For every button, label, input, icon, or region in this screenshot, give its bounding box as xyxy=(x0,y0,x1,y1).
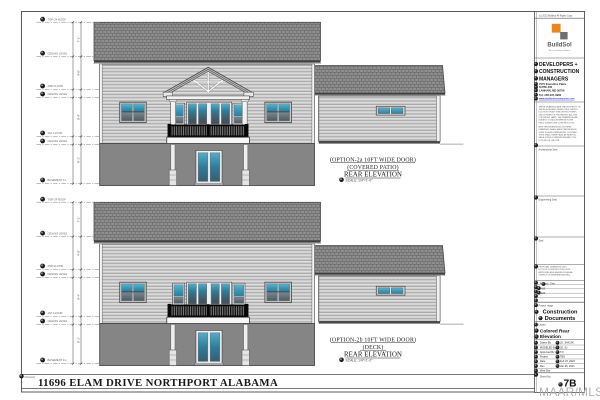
svg-text:7'-1″: 7'-1″ xyxy=(76,37,80,43)
svg-text:DEVELOPERS +: DEVELOPERS + xyxy=(539,62,578,68)
svg-text:MAAR/MLS: MAAR/MLS xyxy=(539,385,600,399)
svg-text:A06: A06 xyxy=(541,288,546,291)
svg-text:1ST FLOOR: 1ST FLOOR xyxy=(48,131,63,135)
svg-text:THE BUILDER AND DEVELOPER. REP: THE BUILDER AND DEVELOPER. REPRO- xyxy=(539,108,579,111)
svg-text:Project: Project xyxy=(540,356,548,359)
svg-text:JD, SHIOJN: JD, SHIOJN xyxy=(560,342,574,345)
svg-text:SCALE: 1/4″=1'-0″: SCALE: 1/4″=1'-0″ xyxy=(346,358,374,362)
svg-text:TJI: TJI xyxy=(560,351,564,354)
svg-text:Documents: Documents xyxy=(545,316,575,322)
svg-text:2ND FLOOR: 2ND FLOOR xyxy=(48,264,63,268)
svg-text:“We're building solutions”: “We're building solutions” xyxy=(548,49,572,52)
svg-text:PROPOSAL DRAWINGS ONLY:: PROPOSAL DRAWINGS ONLY: xyxy=(539,266,568,269)
svg-text:Jan 25, 2023: Jan 25, 2023 xyxy=(560,365,575,368)
svg-text:CONSTRUCTION: CONSTRUCTION xyxy=(539,69,580,75)
svg-text:TOP OF ROOF: TOP OF ROOF xyxy=(48,17,67,21)
svg-text:8'-1″: 8'-1″ xyxy=(76,157,80,163)
svg-text:TORS SHALL VERIFY AND BE RESPO: TORS SHALL VERIFY AND BE RESPON- xyxy=(539,134,577,137)
svg-text:9'-4″: 9'-4″ xyxy=(76,294,80,300)
svg-text:SIBLE FOR ALL DIMENSIONS AND C: SIBLE FOR ALL DIMENSIONS AND CON- xyxy=(539,136,577,139)
svg-text:2ND FLOOR: 2ND FLOOR xyxy=(48,84,63,88)
svg-text:(c) 2023 Buildsol All Rights C: (c) 2023 Buildsol All Rights Copy xyxy=(539,14,573,17)
svg-text:Layout: Layout xyxy=(539,324,547,327)
svg-text:Construction: Construction xyxy=(543,310,578,316)
svg-text:Tel: 202-237-0960: Tel: 202-237-0960 xyxy=(539,93,562,97)
svg-text:BASEMENT F.L.: BASEMENT F.L. xyxy=(48,178,68,182)
svg-text:Project stage: Project stage xyxy=(539,304,554,307)
svg-text:CHITECT OR ENGINEER AS REQ.: CHITECT OR ENGINEER AS REQ. xyxy=(539,273,571,276)
svg-text:Architectural Seal: Architectural Seal xyxy=(539,149,558,152)
svg-text:THESE DRAWINGS ARE THE PROPERT: THESE DRAWINGS ARE THE PROPERTY OF xyxy=(539,105,582,108)
svg-text:A06: A06 xyxy=(541,292,546,295)
svg-text:DRAWINGS SHALL HAVE PRECEDENCE: DRAWINGS SHALL HAVE PRECEDENCE xyxy=(539,128,578,131)
svg-text:Date: Date xyxy=(540,360,546,363)
svg-text:MODELED By: MODELED By xyxy=(540,346,557,349)
svg-text:LANHAM, MD 20706: LANHAM, MD 20706 xyxy=(539,88,565,92)
svg-text:Approved By: Approved By xyxy=(540,351,555,354)
svg-text:(OPTION-2b 10FT WIDE DOOR): (OPTION-2b 10FT WIDE DOOR) xyxy=(330,336,416,343)
svg-text:TEN CONSENT IS PROHIBITED. ALL: TEN CONSENT IS PROHIBITED. ALL THE xyxy=(539,113,578,116)
svg-text:SUBJECT TO ADJUSTMENTS IN THE: SUBJECT TO ADJUSTMENTS IN THE xyxy=(539,119,574,122)
svg-text:Drawn By: Drawn By xyxy=(540,342,552,345)
svg-text:www.buildsolconstruction.com: www.buildsolconstruction.com xyxy=(539,98,574,101)
svg-text:CEILING LEVEL: CEILING LEVEL xyxy=(48,319,68,323)
svg-text:CEILING LEVEL: CEILING LEVEL xyxy=(48,272,68,276)
svg-text:JD, SJ: JD, SJ xyxy=(560,346,568,349)
svg-text:(DECK): (DECK) xyxy=(363,344,384,351)
svg-text:Seal: Seal xyxy=(539,240,544,243)
svg-text:Colored Rear: Colored Rear xyxy=(540,328,570,333)
svg-text:Owner(s): Owner(s) xyxy=(25,375,36,379)
svg-text:APPROVED AND SEALED BY AN AR-: APPROVED AND SEALED BY AN AR- xyxy=(539,271,574,274)
svg-text:1ST FLOOR: 1ST FLOOR xyxy=(48,311,63,315)
svg-text:TOP OF ROOF: TOP OF ROOF xyxy=(48,197,67,201)
svg-text:CEILING LEVEL: CEILING LEVEL xyxy=(48,51,68,55)
svg-text:8'-1″: 8'-1″ xyxy=(76,337,80,343)
svg-text:MANAGERS: MANAGERS xyxy=(539,76,569,82)
svg-text:7'-1″: 7'-1″ xyxy=(76,217,80,223)
svg-text:DITIONS ON THE JOB.: DITIONS ON THE JOB. xyxy=(539,140,561,142)
svg-text:11696 ELAM DRIVE NORTHPORT ALA: 11696 ELAM DRIVE NORTHPORT ALABAMA xyxy=(38,377,278,389)
svg-text:CEILING LEVEL: CEILING LEVEL xyxy=(48,231,68,235)
svg-text:FIELD DURING THE CONSTRUCTION.: FIELD DURING THE CONSTRUCTION. xyxy=(539,122,575,124)
svg-text:TBD: TBD xyxy=(560,356,565,359)
svg-text:CEILING LEVEL: CEILING LEVEL xyxy=(48,139,68,143)
svg-text:OVER SCALED DIMENSIONS. CONTRA: OVER SCALED DIMENSIONS. CONTRAC- xyxy=(539,131,578,134)
svg-text:COPYRIGHT LAWS. THE DRAWINGS A: COPYRIGHT LAWS. THE DRAWINGS ARE xyxy=(539,116,579,119)
svg-text:BASEMENT F.L.: BASEMENT F.L. xyxy=(48,358,68,362)
svg-text:DUCTION OF ANY KIND WITHOUT WR: DUCTION OF ANY KIND WITHOUT WRIT- xyxy=(539,111,578,114)
svg-text:(COVERED PATIO): (COVERED PATIO) xyxy=(347,164,399,171)
svg-text:(OPTION-2a 10FT WIDE DOOR): (OPTION-2a 10FT WIDE DOOR) xyxy=(330,156,416,163)
svg-text:BuildSol: BuildSol xyxy=(547,43,572,49)
svg-text:Elevation: Elevation xyxy=(540,334,561,339)
svg-text:4'-8″: 4'-8″ xyxy=(76,250,80,256)
svg-text:4'-8″: 4'-8″ xyxy=(76,70,80,76)
svg-text:SCALE: 1/4″=1'-0″: SCALE: 1/4″=1'-0″ xyxy=(346,178,374,182)
svg-text:Engineering Seal: Engineering Seal xyxy=(539,199,558,202)
svg-text:Web Site: Web Site xyxy=(540,370,551,373)
svg-text:Sheet No.: Sheet No. xyxy=(540,376,551,379)
svg-text:CEILING LEVEL: CEILING LEVEL xyxy=(48,92,68,96)
svg-text:Feb 23, 2023: Feb 23, 2023 xyxy=(560,360,575,363)
svg-text:9'-4″: 9'-4″ xyxy=(76,114,80,120)
svg-text:Rev: Rev xyxy=(540,365,545,368)
